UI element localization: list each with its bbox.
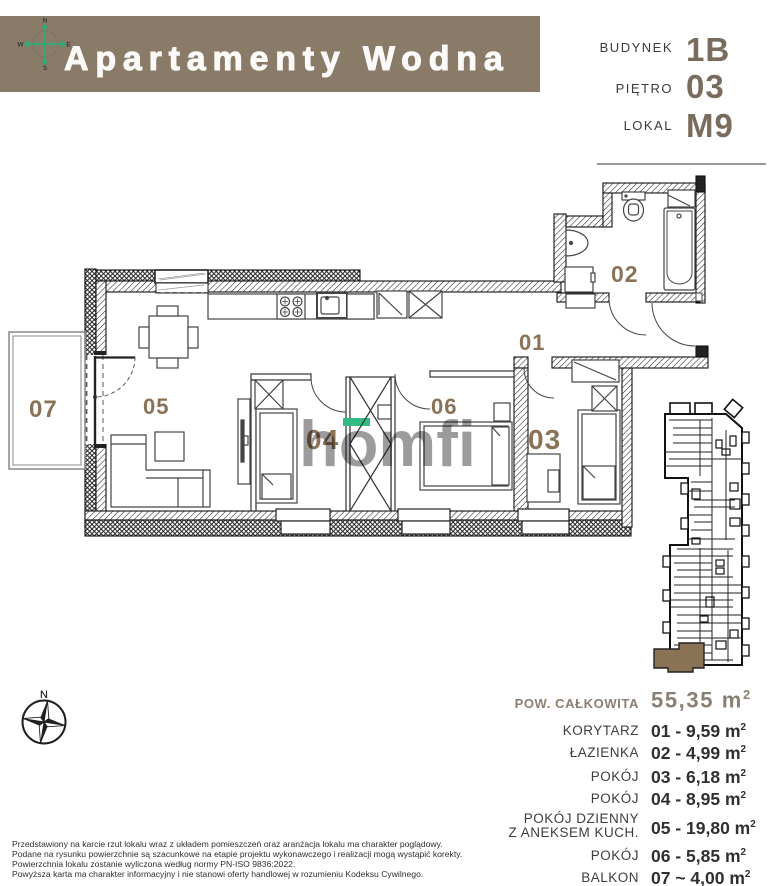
svg-text:05: 05	[143, 394, 169, 419]
svg-text:homfi: homfi	[299, 407, 476, 480]
svg-text:N: N	[43, 18, 48, 25]
svg-text:S: S	[43, 65, 48, 72]
svg-text:07: 07	[29, 396, 58, 423]
svg-text:02: 02	[611, 261, 639, 287]
svg-text:03: 03	[528, 424, 561, 455]
svg-text:N: N	[40, 689, 48, 701]
svg-text:W: W	[17, 42, 24, 49]
svg-text:01: 01	[519, 330, 545, 355]
